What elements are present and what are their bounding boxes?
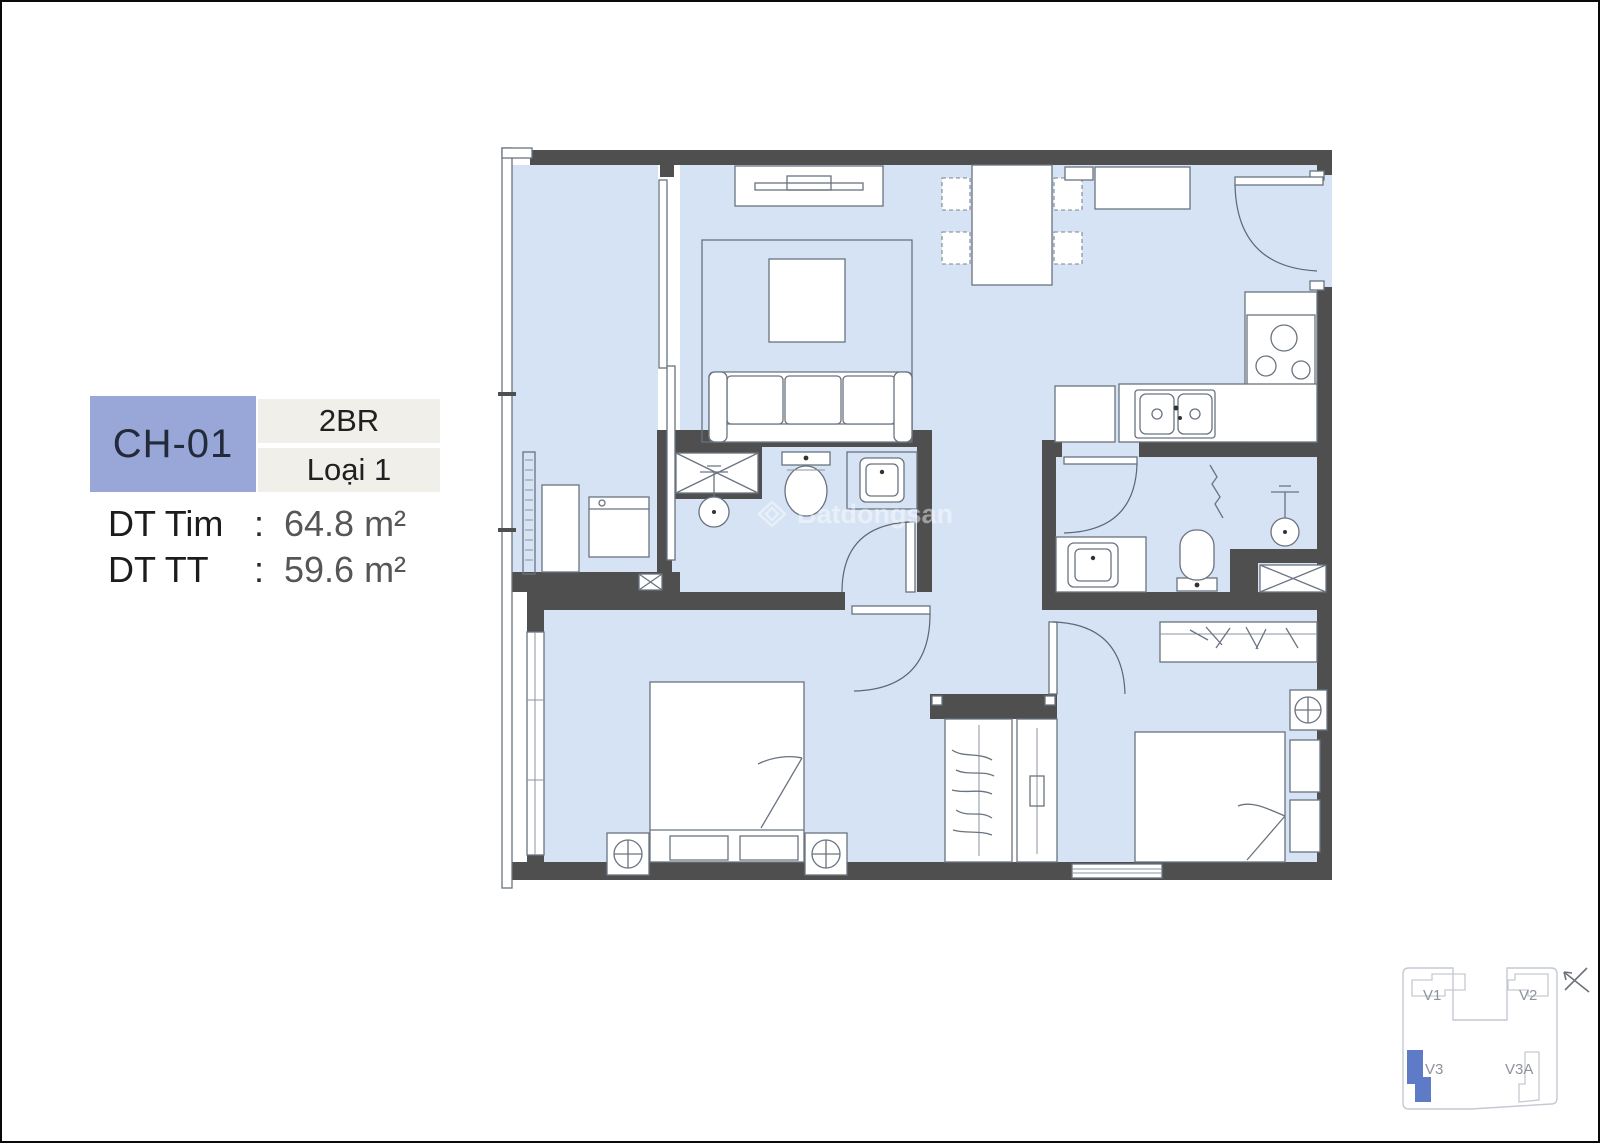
page: CH-01 2BR Loại 1 DT Tim : 64.8 m² DT TT … — [0, 0, 1600, 1143]
bedrooms-badge: 2BR — [258, 399, 440, 443]
coffee-table — [769, 259, 845, 342]
wall-cap-tab — [1045, 696, 1055, 705]
hallway-floor — [932, 430, 1057, 694]
washing-machine — [589, 497, 649, 557]
wardrobe-bedroom-2 — [1160, 622, 1317, 662]
bed-1 — [650, 682, 804, 862]
area-gross-row: DT Tim : 64.8 m² — [108, 501, 406, 547]
toilet-2 — [1177, 530, 1217, 591]
fridge-cabinet — [1095, 167, 1190, 209]
wall-cap-tab — [932, 696, 942, 705]
key-plan-label-v1: V1 — [1423, 987, 1441, 1004]
floor-plan: Batdongsan — [490, 140, 1335, 892]
vent-shaft-bath1 — [676, 453, 758, 493]
vent-shaft-bath2 — [1260, 565, 1326, 592]
unit-tags: 2BR Loại 1 — [258, 399, 440, 497]
north-arrow-icon — [1564, 968, 1589, 992]
key-plan: V1 V2 V3 V3A — [1362, 927, 1600, 1137]
hall-wardrobe — [945, 719, 1057, 862]
kitchen-sink — [1135, 390, 1215, 438]
area-gross-label: DT Tim — [108, 503, 254, 545]
bedroom-1-window — [527, 632, 544, 855]
area-net-label: DT TT — [108, 549, 254, 591]
area-gross-colon: : — [254, 503, 284, 545]
dining-table — [972, 165, 1052, 285]
key-plan-label-v3: V3 — [1425, 1061, 1443, 1078]
nightstand-lamp — [805, 833, 847, 875]
tv-console — [735, 166, 883, 206]
area-net-row: DT TT : 59.6 m² — [108, 547, 406, 593]
shelf — [1065, 167, 1093, 180]
nightstand-lamp — [607, 833, 649, 875]
nightstand-lamp — [1290, 690, 1327, 730]
area-net-value: 59.6 m² — [284, 549, 406, 591]
vent-shaft-balcony — [639, 574, 662, 590]
balcony-cabinet — [542, 485, 579, 572]
dining-chair — [1054, 178, 1082, 210]
dining-chair — [942, 178, 970, 210]
area-gross-value: 64.8 m² — [284, 503, 406, 545]
wash-basin-2 — [1056, 537, 1146, 592]
bottom-window — [1072, 864, 1162, 878]
sofa — [709, 372, 912, 442]
key-plan-label-v3a: V3A — [1505, 1061, 1533, 1078]
watermark-text: Batdongsan — [797, 499, 953, 529]
dining-chair — [942, 232, 970, 264]
key-plan-label-v2: V2 — [1519, 987, 1537, 1004]
unit-code-badge: CH-01 — [90, 396, 256, 492]
dining-chair — [1054, 232, 1082, 264]
entrance-gap — [1317, 175, 1332, 287]
area-net-colon: : — [254, 549, 284, 591]
unit-type-badge: Loại 1 — [258, 448, 440, 492]
area-info: DT Tim : 64.8 m² DT TT : 59.6 m² — [108, 501, 406, 593]
kitchen-cabinet — [1055, 386, 1115, 442]
